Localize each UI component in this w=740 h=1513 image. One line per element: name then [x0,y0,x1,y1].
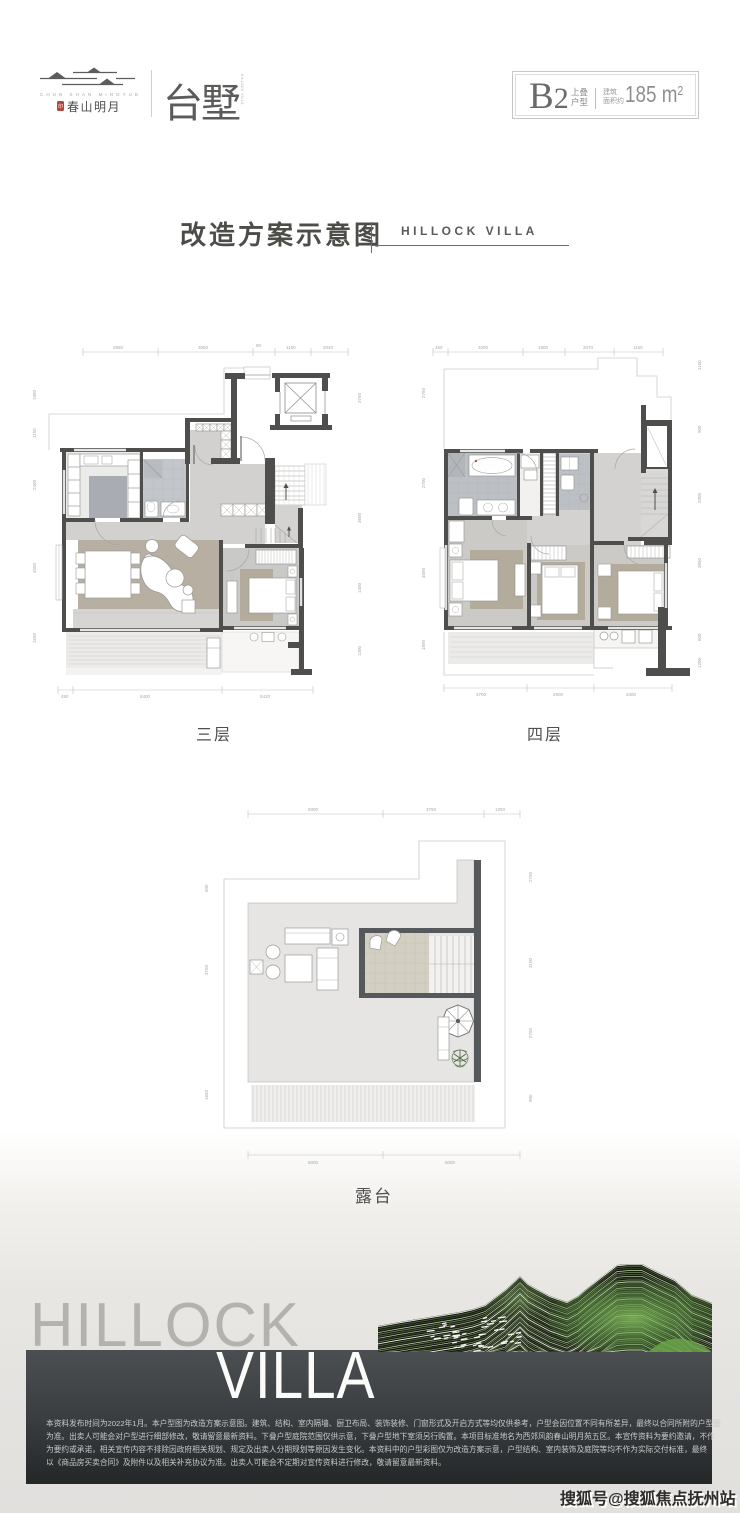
svg-text:2750: 2750 [528,1027,533,1038]
svg-text:5000: 5000 [308,807,319,812]
svg-text:3750: 3750 [357,392,362,403]
svg-text:90: 90 [256,343,262,348]
svg-text:1800: 1800 [421,639,426,650]
svg-text:3600: 3600 [357,512,362,523]
svg-text:4550: 4550 [32,562,37,573]
svg-text:5420: 5420 [260,694,271,699]
svg-text:3750: 3750 [204,964,209,975]
svg-text:600: 600 [204,884,209,892]
svg-text:2750: 2750 [528,871,533,882]
svg-text:5000: 5000 [445,1160,456,1165]
svg-text:3050: 3050 [198,345,209,350]
svg-text:3200: 3200 [478,345,489,350]
svg-text:3750: 3750 [426,807,437,812]
svg-text:1150: 1150 [286,345,296,350]
svg-text:CHUN SHAN MINGYUE: CHUN SHAN MINGYUE [40,92,141,97]
svg-text:1800: 1800 [538,345,549,350]
svg-text:6400: 6400 [140,694,151,699]
svg-text:2040: 2040 [323,345,334,350]
svg-text:1650: 1650 [204,1089,209,1100]
svg-text:印: 印 [58,103,63,110]
svg-text:3100: 3100 [528,957,533,968]
svg-text:1250: 1250 [495,807,506,812]
svg-text:450: 450 [435,345,443,350]
svg-text:1400: 1400 [357,582,362,593]
svg-text:1150: 1150 [32,428,37,438]
svg-text:4600: 4600 [421,567,426,578]
svg-text:春山明月: 春山明月 [67,100,121,114]
svg-text:3700: 3700 [476,692,487,697]
svg-text:1650: 1650 [32,632,37,643]
svg-text:2750: 2750 [421,387,426,398]
svg-text:3400: 3400 [626,692,637,697]
svg-text:2850: 2850 [113,345,124,350]
svg-text:1950: 1950 [32,389,37,400]
svg-text:3300: 3300 [697,492,702,503]
svg-text:900: 900 [697,425,702,433]
svg-text:450: 450 [61,694,69,699]
svg-text:1200: 1200 [697,657,702,668]
svg-text:900: 900 [528,1094,533,1102]
svg-text:2070: 2070 [583,345,594,350]
svg-text:2700: 2700 [421,477,426,488]
svg-text:600: 600 [697,633,702,641]
svg-text:5000: 5000 [308,1160,319,1165]
svg-text:2400: 2400 [32,479,37,490]
svg-text:1150: 1150 [633,345,643,350]
svg-text:2900: 2900 [553,692,564,697]
svg-text:1200: 1200 [357,645,362,656]
svg-text:3850: 3850 [697,557,702,568]
svg-text:1150: 1150 [697,360,702,370]
